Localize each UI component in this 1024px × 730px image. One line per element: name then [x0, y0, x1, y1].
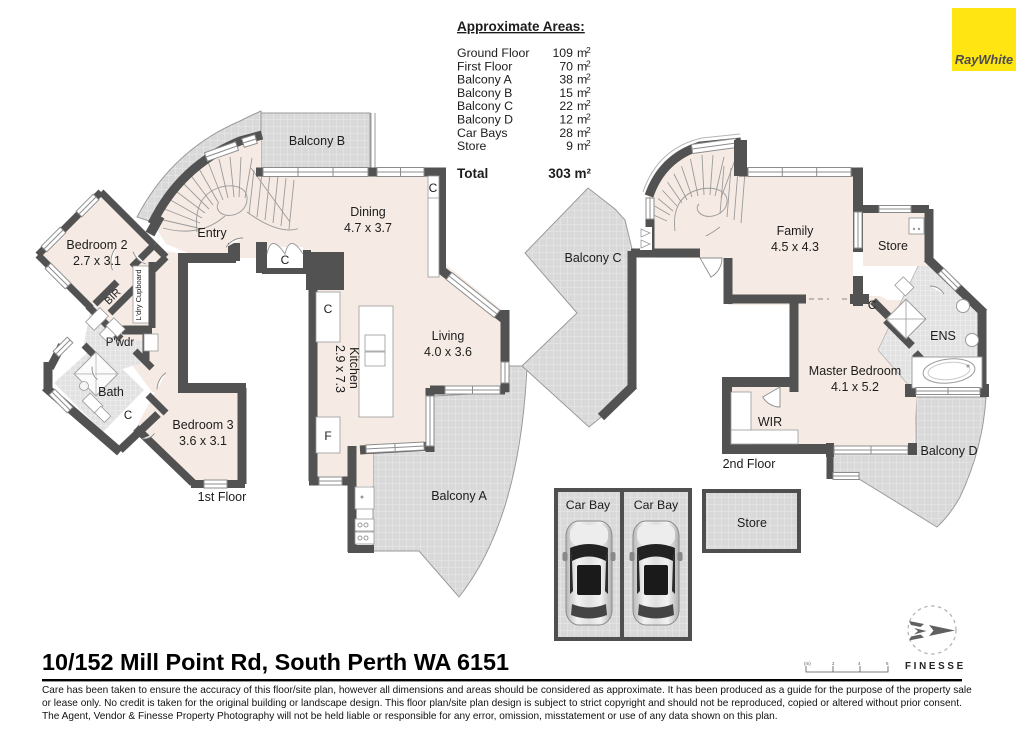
svg-text:12: 12 [559, 113, 573, 127]
svg-text:38: 38 [559, 73, 573, 87]
svg-text:2: 2 [586, 45, 591, 55]
svg-text:4.0 x 3.6: 4.0 x 3.6 [424, 345, 472, 359]
svg-text:4.5 x 4.3: 4.5 x 4.3 [771, 240, 819, 254]
svg-text:WIR: WIR [758, 415, 782, 429]
svg-text:Balcony A: Balcony A [431, 489, 487, 503]
svg-text:2: 2 [586, 138, 591, 148]
svg-text:2: 2 [586, 58, 591, 68]
svg-text:Total: Total [457, 166, 488, 181]
svg-text:Balcony D: Balcony D [457, 113, 513, 127]
svg-text:3.6 x 3.1: 3.6 x 3.1 [179, 434, 227, 448]
svg-text:FINESSE: FINESSE [905, 661, 966, 672]
svg-text:P'wdr: P'wdr [106, 337, 135, 349]
svg-text:Master Bedroom: Master Bedroom [809, 364, 901, 378]
svg-text:ENS: ENS [930, 329, 956, 343]
svg-text:Car Bay: Car Bay [566, 498, 611, 512]
svg-text:RayWhite: RayWhite [955, 52, 1013, 67]
svg-text:C: C [429, 181, 438, 195]
svg-text:2nd Floor: 2nd Floor [723, 457, 776, 471]
svg-text:2.9 x 7.3: 2.9 x 7.3 [333, 345, 347, 393]
svg-text:C: C [324, 302, 333, 316]
svg-text:Approximate Areas:: Approximate Areas: [457, 19, 585, 34]
svg-text:Bath: Bath [98, 385, 124, 399]
svg-text:First Floor: First Floor [457, 59, 512, 73]
svg-text:2: 2 [586, 125, 591, 135]
svg-text:Bedroom 3: Bedroom 3 [172, 418, 233, 432]
svg-text:Balcony C: Balcony C [565, 251, 622, 265]
svg-text:Store: Store [878, 239, 908, 253]
svg-text:2: 2 [586, 72, 591, 82]
svg-text:Balcony C: Balcony C [457, 99, 513, 113]
svg-text:Balcony A: Balcony A [457, 73, 512, 87]
svg-text:2.7 x 3.1: 2.7 x 3.1 [73, 254, 121, 268]
svg-text:The Agent, Vendor & Finesse Pr: The Agent, Vendor & Finesse Property Pho… [42, 711, 778, 722]
svg-text:L'dry Cupboard: L'dry Cupboard [134, 269, 143, 320]
svg-text:1st Floor: 1st Floor [198, 490, 247, 504]
svg-text:70: 70 [559, 59, 573, 73]
svg-text:Family: Family [777, 224, 815, 238]
svg-text:(m): (m) [804, 661, 811, 666]
svg-text:109: 109 [552, 46, 573, 60]
svg-text:4.7 x 3.7: 4.7 x 3.7 [344, 221, 392, 235]
svg-text:Car Bays: Car Bays [457, 126, 508, 140]
svg-text:2: 2 [586, 85, 591, 95]
svg-text:Care has been taken to ensure: Care has been taken to ensure the accura… [42, 685, 972, 696]
svg-text:Bedroom 2: Bedroom 2 [66, 238, 127, 252]
svg-text:15: 15 [559, 86, 573, 100]
svg-text:Balcony B: Balcony B [457, 86, 512, 100]
svg-text:Balcony B: Balcony B [289, 134, 345, 148]
svg-text:4.1 x 5.2: 4.1 x 5.2 [831, 380, 879, 394]
svg-text:Dining: Dining [350, 205, 385, 219]
svg-text:10/152 Mill Point Rd, South Pe: 10/152 Mill Point Rd, South Perth WA 615… [42, 649, 509, 675]
svg-text:C: C [868, 300, 876, 312]
svg-text:or lease only. No credit is ta: or lease only. No credit is taken for th… [42, 698, 962, 709]
svg-text:Kitchen: Kitchen [347, 347, 361, 389]
svg-text:Balcony D: Balcony D [921, 444, 978, 458]
svg-text:2: 2 [586, 112, 591, 122]
svg-text:Entry: Entry [197, 226, 227, 240]
svg-text:Car Bay: Car Bay [634, 498, 679, 512]
svg-text:Ground Floor: Ground Floor [457, 46, 529, 60]
svg-text:28: 28 [559, 126, 573, 140]
svg-text:C: C [281, 253, 290, 267]
svg-text:2: 2 [586, 98, 591, 108]
svg-text:F: F [324, 429, 331, 443]
svg-text:22: 22 [559, 99, 573, 113]
svg-text:303 m²: 303 m² [548, 166, 591, 181]
svg-text:Store: Store [457, 139, 487, 153]
svg-text:Living: Living [432, 329, 465, 343]
svg-text:9: 9 [566, 139, 573, 153]
svg-text:Store: Store [737, 516, 767, 530]
svg-text:C: C [124, 410, 132, 422]
